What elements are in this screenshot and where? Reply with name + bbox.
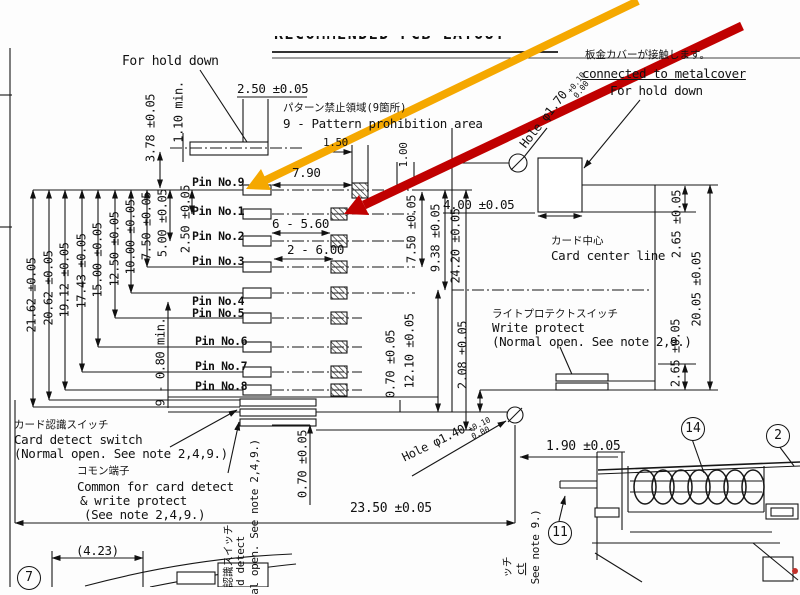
drawing-title-text: RECOMMENDED PCB LAYOUT [274, 36, 506, 43]
part-callout-14: 14 [681, 417, 705, 441]
card-detect-note: (Normal open. See note 2,4,9.) [14, 447, 228, 461]
hold-down-right-label: For hold down [610, 84, 703, 98]
common-label-en1: Common for card detect [77, 480, 234, 494]
write-protect-label-en: Write protect [492, 321, 585, 335]
sheet-frame [0, 48, 12, 587]
dim-21-62: 21.62 ±0.05 [26, 257, 39, 332]
write-protect-note: (Normal open. See note 2,9.) [492, 335, 692, 349]
dim-4-23: (4.23) [76, 544, 119, 558]
dim-2-65-top: 2.65 ±0.05 [671, 190, 684, 258]
spring-section-view [559, 439, 800, 582]
dim-10-00: 10.00 ±0.05 [125, 199, 138, 274]
write-protect-label-jp: ライトプロテクトスイッチ [492, 309, 618, 320]
hold-down-left-label: For hold down [122, 55, 219, 69]
dim-2-50-left: 2.50 ±0.05 [180, 185, 193, 253]
card-center-label-en: Card center line [551, 249, 665, 263]
dim-7-50-left: 7.50 ±0.05 [141, 192, 154, 260]
dim-17-43: 17.43 ±0.05 [76, 233, 89, 308]
clipped-label-left-note: al open. See note 2,4,9.) [249, 439, 261, 595]
dim-2-65-bottom: 2.65 ±0.05 [670, 319, 683, 387]
common-note: (See note 2,4,9.) [84, 508, 205, 522]
prohibition-hatches [331, 183, 368, 396]
pin-label-5: Pin No.5 [192, 307, 240, 319]
prohibition-label-jp: パターン禁止領域(9箇所) [283, 103, 406, 114]
part-callout-7: 7 [17, 566, 41, 590]
clipped-label-right-jp: ッチ [502, 557, 513, 578]
dim-12-50: 12.50 ±0.05 [109, 211, 122, 286]
dim-20-62: 20.62 ±0.05 [43, 250, 56, 325]
dim-pad-width: 2.50 ±0.05 [237, 82, 308, 96]
dim-7-90: 7.90 [292, 166, 321, 180]
metalcover-label-jp: 板金カバーが接触します。 [585, 50, 710, 61]
dim-23-50: 23.50 ±0.05 [350, 502, 432, 516]
card-detect-label-jp: カード認識スイッチ [14, 420, 109, 431]
prohibition-label-en: 9 - Pattern prohibition area [283, 117, 483, 131]
pin-label-2: Pin No.2 [192, 230, 240, 242]
drawing-title: RECOMMENDED PCB LAYOUT [272, 36, 560, 52]
coil-spring [634, 470, 764, 504]
dim-3-78: 3.78 ±0.05 [145, 94, 158, 162]
dim-0-70-bottom: 0.70 ±0.05 [297, 430, 310, 498]
dim-15-00: 15.00 ±0.05 [92, 222, 105, 297]
pin-label-8: Pin No.8 [195, 380, 243, 392]
clipped-label-left-jp: 認識スイッチ [223, 525, 234, 588]
dim-24-20: 24.20 ±0.05 [450, 208, 463, 283]
pin-pads [243, 185, 271, 395]
pin-label-3: Pin No.3 [192, 255, 240, 267]
dim-20-05: 20.05 ±0.05 [691, 251, 704, 326]
dim-1-10-min: 1.10 min. [173, 81, 186, 142]
dim-12-10: 12.10 ±0.05 [404, 313, 417, 388]
common-label-en2: & write protect [80, 494, 187, 508]
dim-1-90: 1.90 ±0.05 [546, 440, 620, 454]
pin-label-1: Pin No.1 [192, 205, 240, 217]
clipped-label-left-en: d detect [235, 536, 247, 586]
dim-1-50: 1.50 [323, 137, 348, 149]
dim-7-50-right: 7.50 ±0.05 [406, 195, 419, 263]
dim-0-70-mid: 0.70 ±0.05 [385, 330, 398, 398]
dim-6x5-60: 6 - 5.60 [272, 217, 329, 231]
dim-2-08: 2.08 ±0.05 [457, 321, 470, 389]
card-center-label-jp: カード中心 [551, 236, 604, 247]
clipped-label-right-en: ct [515, 563, 527, 575]
common-label-jp: コモン端子 [77, 466, 130, 477]
dim-5-00: 5.00 ±0.05 [157, 189, 170, 257]
metalcover-label-en: connected to metalcover [582, 67, 746, 81]
card-detect-label-en: Card detect switch [14, 433, 142, 447]
pin-label-9: Pin No.9 [192, 176, 240, 188]
part-callout-2: 2 [766, 424, 790, 448]
part-callout-11: 11 [548, 521, 572, 545]
dim-2x6-00: 2 - 6.00 [287, 243, 344, 257]
dim-9x0-80-min: 9 - 0.80 min. [155, 318, 168, 407]
pin-label-7: Pin No.7 [195, 360, 243, 372]
dim-1-00: 1.00 [398, 143, 410, 168]
pin-label-6: Pin No.6 [195, 335, 243, 347]
dim-19-12: 19.12 ±0.05 [59, 242, 72, 317]
dim-9-38: 9.38 ±0.05 [430, 204, 443, 272]
clipped-label-right-note: See note 9.) [530, 510, 542, 585]
dim-4-00: 4.00 ±0.05 [443, 198, 514, 212]
